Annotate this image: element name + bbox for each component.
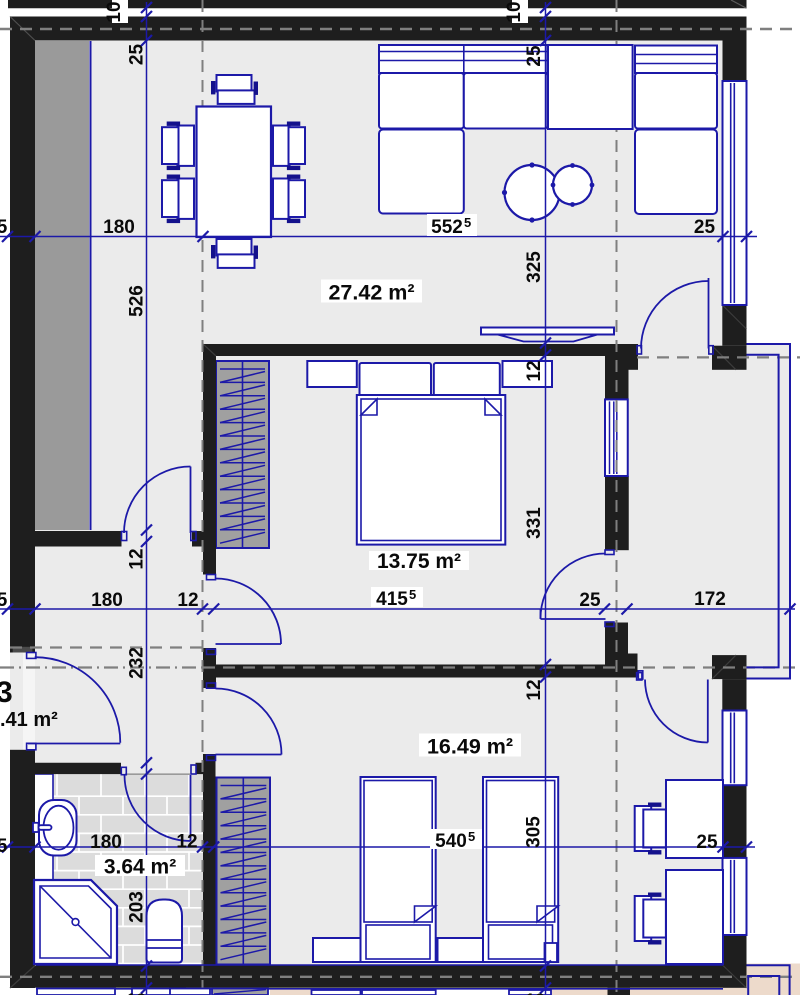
svg-text:25: 25 bbox=[127, 44, 148, 66]
svg-text:172: 172 bbox=[694, 589, 726, 610]
svg-text:25: 25 bbox=[524, 45, 545, 67]
svg-text:25: 25 bbox=[579, 590, 601, 611]
svg-text:25: 25 bbox=[694, 217, 716, 238]
svg-text:12: 12 bbox=[127, 548, 148, 569]
svg-text:10: 10 bbox=[104, 1, 125, 22]
svg-text:5: 5 bbox=[409, 587, 416, 602]
svg-text:.41 m²: .41 m² bbox=[0, 709, 58, 731]
svg-text:13.75 m²: 13.75 m² bbox=[377, 550, 461, 573]
svg-text:203: 203 bbox=[127, 891, 148, 923]
svg-text:3.64 m²: 3.64 m² bbox=[104, 856, 176, 879]
svg-text:25: 25 bbox=[696, 832, 718, 853]
svg-text:12: 12 bbox=[525, 991, 545, 995]
svg-text:180: 180 bbox=[90, 832, 122, 853]
svg-text:12: 12 bbox=[126, 991, 146, 995]
svg-text:12: 12 bbox=[524, 679, 545, 700]
svg-text:331: 331 bbox=[524, 507, 545, 539]
svg-text:27.42 m²: 27.42 m² bbox=[328, 281, 414, 305]
svg-text:232: 232 bbox=[127, 647, 148, 679]
svg-text:3: 3 bbox=[0, 676, 13, 709]
svg-text:5: 5 bbox=[0, 590, 8, 611]
svg-text:415: 415 bbox=[376, 589, 408, 610]
svg-text:5: 5 bbox=[464, 215, 471, 230]
svg-text:5: 5 bbox=[468, 829, 475, 844]
svg-text:12: 12 bbox=[177, 590, 198, 611]
svg-text:16.49 m²: 16.49 m² bbox=[427, 735, 513, 759]
svg-text:10: 10 bbox=[504, 1, 525, 22]
svg-text:180: 180 bbox=[103, 217, 135, 238]
svg-text:526: 526 bbox=[127, 285, 148, 317]
svg-text:180: 180 bbox=[91, 590, 123, 611]
svg-text:540: 540 bbox=[435, 831, 467, 852]
svg-text:5: 5 bbox=[0, 217, 8, 238]
svg-text:12: 12 bbox=[524, 360, 545, 381]
svg-text:552: 552 bbox=[431, 217, 463, 238]
svg-text:305: 305 bbox=[524, 816, 545, 848]
svg-text:325: 325 bbox=[524, 251, 545, 283]
svg-text:12: 12 bbox=[176, 832, 197, 853]
svg-text:5: 5 bbox=[0, 836, 8, 857]
